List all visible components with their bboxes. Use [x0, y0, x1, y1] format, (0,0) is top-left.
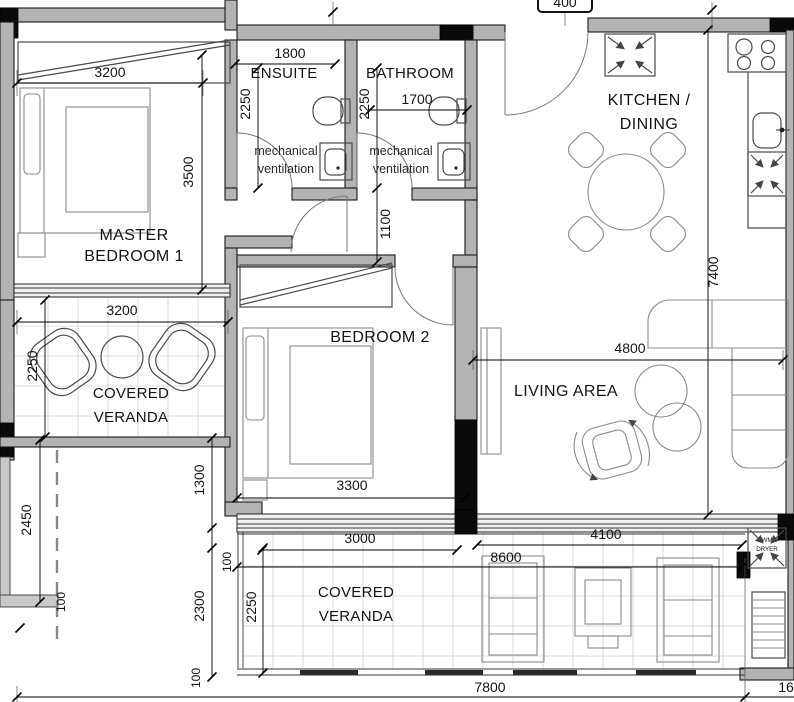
label-bedroom2: BEDROOM 2 [330, 329, 430, 346]
ensuite-door [237, 133, 292, 188]
nightstand [243, 480, 267, 500]
wall-segment [465, 200, 477, 263]
dim-hallway-width: 1100 [377, 209, 393, 239]
dimension-labels: 3200 1800 1700 3200 4800 3300 3000 8600 … [18, 45, 794, 695]
lounger [657, 558, 719, 662]
coffee-table [653, 403, 701, 451]
wall-segment [0, 595, 58, 607]
hob-icon [728, 34, 786, 72]
column [440, 25, 473, 40]
floor-plan-page: 400 3200 1800 1700 3200 4800 3300 3000 8… [0, 0, 794, 702]
dim-bathroom-width: 1700 [401, 91, 432, 107]
living-veranda-glazing [237, 510, 794, 540]
label-veranda-bottom-line1: COVERED [318, 584, 394, 601]
hallway-door [291, 196, 347, 252]
wall-segment [588, 18, 794, 32]
dim-offset-2300: 2300 [191, 590, 207, 621]
dim-veranda-3000: 3000 [344, 530, 375, 546]
wall-segment [788, 520, 794, 672]
dishwasher-icon [748, 152, 786, 196]
wall-segment [412, 188, 477, 200]
wall-segment [237, 25, 473, 40]
label-kitchen-line2: DINING [620, 116, 678, 133]
room-labels: MASTER BEDROOM 1 ENSUITE BATHROOM KITCHE… [84, 65, 778, 625]
bedroom2-wardrobe [240, 263, 392, 307]
dim-veranda-left-width: 3200 [106, 302, 137, 318]
dim-veranda-8600: 8600 [490, 549, 521, 565]
dining-chair [565, 213, 607, 255]
wall-segment [225, 0, 237, 30]
dim-veranda-4100: 4100 [590, 526, 621, 542]
floor-plan-drawing: 400 3200 1800 1700 3200 4800 3300 3000 8… [0, 0, 794, 702]
label-veranda-left-line2: VERANDA [94, 409, 169, 426]
dim-100-mid: 100 [220, 552, 234, 572]
bathroom-toilet-icon [429, 97, 466, 125]
wall-segment [225, 40, 237, 188]
wall-segment [0, 457, 10, 605]
wall-segment [0, 437, 230, 447]
dim-right-partial: 16 [778, 679, 794, 695]
dim-100-left: 100 [54, 592, 68, 612]
wall-segment [225, 188, 237, 200]
entrance-door [505, 32, 588, 115]
note-mech-vent-bathroom-line2: ventilation [373, 162, 429, 176]
kitchen-sink-icon [753, 113, 790, 148]
wall-segment [453, 255, 477, 267]
wall-segment [0, 8, 230, 22]
dining-chair [565, 129, 607, 171]
wall-segment [455, 267, 477, 420]
fridge-icon [605, 34, 655, 76]
dim-overall-width: 7800 [474, 679, 505, 695]
label-kitchen-line1: KITCHEN / [608, 92, 691, 109]
dim-veranda-left-depth: 2250 [24, 350, 40, 381]
wall-segment [0, 22, 14, 300]
dim-bathroom-depth: 2250 [356, 88, 372, 119]
dim-bedroom2-width: 3300 [336, 477, 367, 493]
dim-master-depth: 3500 [180, 156, 196, 187]
dining-table [565, 129, 689, 255]
label-master-line2: BEDROOM 1 [84, 248, 184, 265]
note-mech-vent-ensuite-line1: mechanical [254, 144, 317, 158]
bathroom-door [357, 133, 412, 188]
label-veranda-left-line1: COVERED [93, 385, 169, 402]
dim-100-bottom: 100 [189, 668, 203, 688]
dim-master-width: 3200 [94, 64, 125, 80]
label-living-area: LIVING AREA [514, 383, 618, 400]
swivel-armchair [574, 418, 649, 482]
label-veranda-bottom-line2: VERANDA [319, 608, 394, 625]
dim-kitchen-living-depth: 7400 [705, 256, 721, 287]
bedroom2-bed [243, 328, 373, 500]
label-master-line1: MASTER [99, 227, 168, 244]
master-veranda-window [14, 284, 230, 297]
wall-segment [786, 30, 794, 520]
dim-top-clipped: 400 [553, 0, 577, 10]
wall-segment [465, 40, 477, 200]
note-mech-vent-bathroom-line1: mechanical [369, 144, 432, 158]
dim-veranda-bottom-depth: 2250 [243, 591, 259, 622]
label-dryer: DRYER [756, 546, 778, 553]
note-mech-vent-ensuite-line2: ventilation [258, 162, 314, 176]
label-bathroom: BATHROOM [366, 65, 454, 82]
wall-segment [225, 236, 292, 248]
label-wm: WM [762, 537, 773, 544]
tv-unit [481, 328, 501, 454]
sofa [648, 300, 788, 468]
dim-living-width: 4800 [614, 340, 645, 356]
top-clipped-tag: 400 [538, 0, 592, 12]
louvre-vent [752, 592, 785, 658]
dim-ensuite-width: 1800 [274, 45, 305, 61]
dim-boundary-2450: 2450 [18, 504, 34, 535]
dim-offset-1300: 1300 [191, 464, 207, 495]
bedroom2-door [395, 267, 453, 325]
wall-segment [473, 25, 505, 40]
column [455, 420, 477, 516]
column [455, 510, 477, 534]
nightstand [18, 233, 45, 257]
veranda-left-table [101, 336, 143, 378]
kitchen-counter [748, 72, 786, 228]
veranda-bottom-tiles [237, 518, 745, 668]
railings [57, 450, 745, 675]
label-ensuite: ENSUITE [250, 65, 317, 82]
dim-ensuite-depth: 2250 [237, 88, 253, 119]
